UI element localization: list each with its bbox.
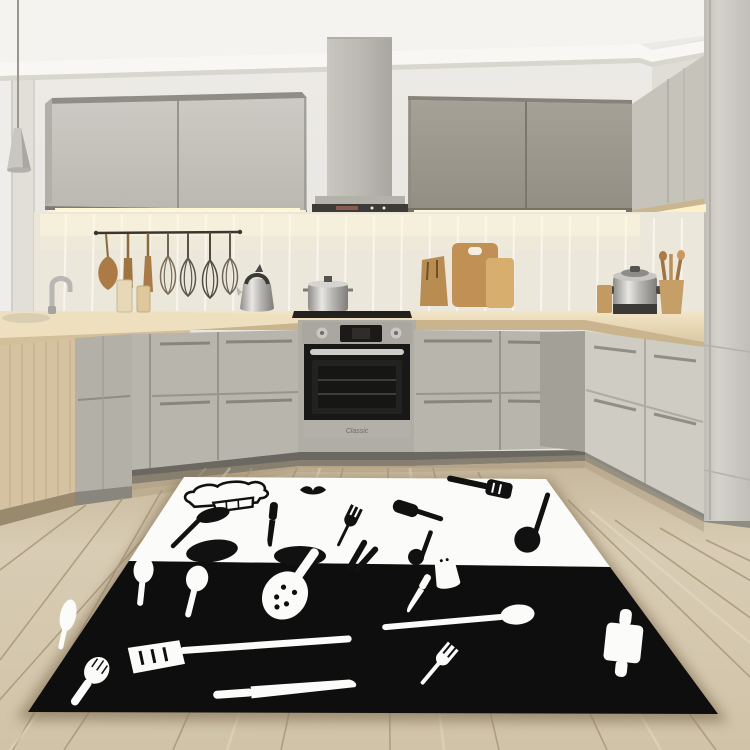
svg-text:Classic: Classic: [346, 428, 369, 435]
